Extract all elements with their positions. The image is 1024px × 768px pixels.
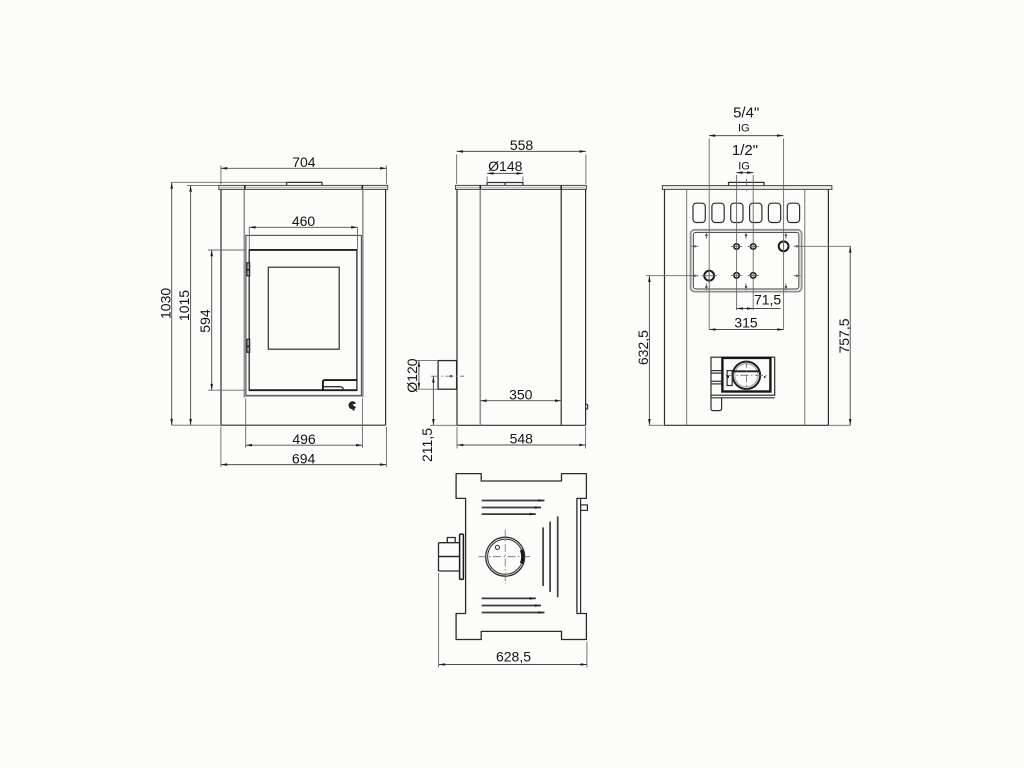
svg-text:315: 315 bbox=[734, 314, 758, 330]
svg-text:Ø148: Ø148 bbox=[488, 158, 522, 174]
svg-text:1015: 1015 bbox=[176, 290, 192, 321]
svg-text:1030: 1030 bbox=[158, 288, 174, 319]
svg-text:558: 558 bbox=[510, 137, 534, 153]
svg-text:IG: IG bbox=[738, 122, 750, 134]
svg-text:628,5: 628,5 bbox=[496, 649, 531, 665]
svg-text:IG: IG bbox=[738, 161, 750, 173]
svg-text:71,5: 71,5 bbox=[754, 291, 781, 307]
svg-text:496: 496 bbox=[292, 431, 316, 447]
svg-text:350: 350 bbox=[509, 386, 533, 402]
svg-text:594: 594 bbox=[197, 309, 213, 333]
svg-text:757,5: 757,5 bbox=[836, 318, 852, 353]
svg-text:632,5: 632,5 bbox=[635, 330, 651, 365]
svg-text:694: 694 bbox=[292, 450, 316, 466]
svg-text:211,5: 211,5 bbox=[419, 428, 435, 462]
svg-text:704: 704 bbox=[292, 154, 316, 170]
svg-text:5/4": 5/4" bbox=[733, 105, 759, 122]
svg-text:1/2": 1/2" bbox=[732, 142, 758, 159]
svg-text:Ø120: Ø120 bbox=[404, 358, 420, 392]
svg-text:548: 548 bbox=[510, 431, 534, 447]
svg-text:460: 460 bbox=[292, 213, 316, 229]
